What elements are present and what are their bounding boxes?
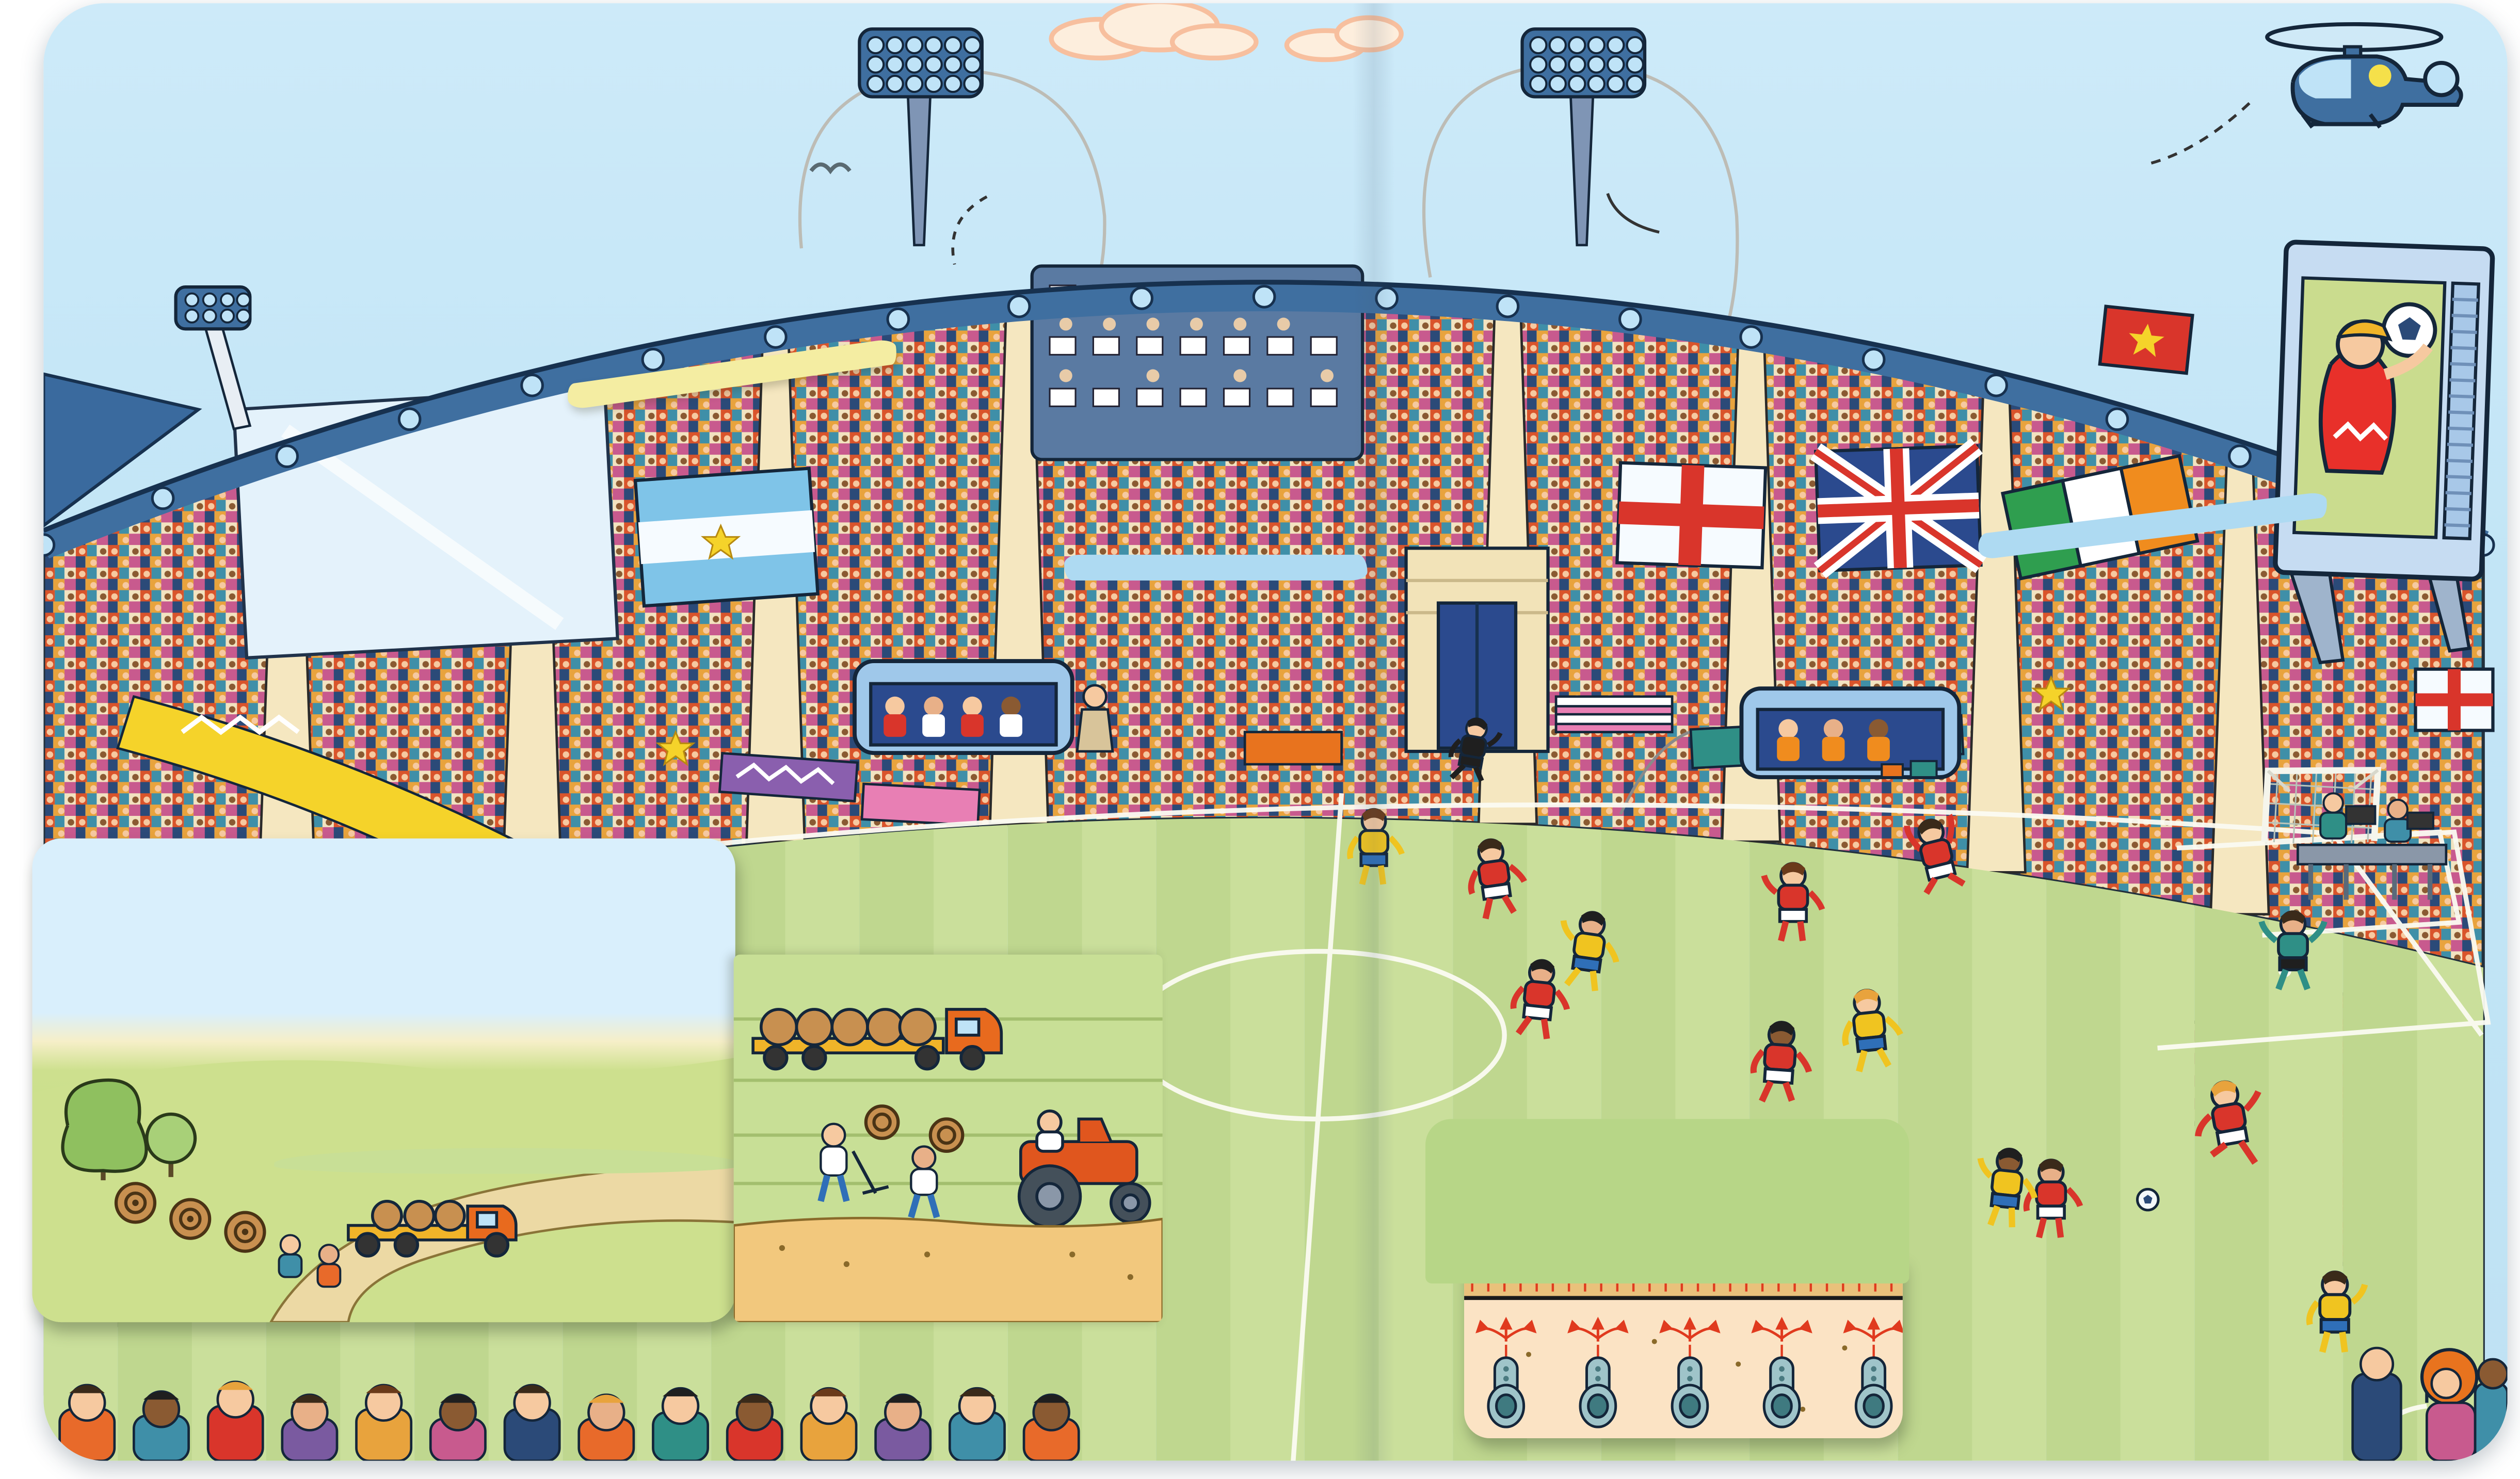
book-spine-crease <box>1353 3 1394 1461</box>
turf-roll-icon <box>866 1106 962 1151</box>
red-flag-icon <box>2100 307 2193 374</box>
soccer-ball-icon <box>2138 1189 2159 1210</box>
seagull-icon <box>811 165 850 171</box>
turf-field-illustration <box>32 839 735 1322</box>
book-spread <box>0 0 2520 1478</box>
helicopter-icon <box>2267 24 2461 127</box>
heating-pipe-icon <box>1488 1345 1891 1427</box>
turf-laying-panel <box>734 955 1163 1322</box>
floodlight-tower-icon <box>859 29 982 245</box>
heating-pipes-flap <box>1464 1258 1903 1438</box>
turf-field-flap <box>32 839 735 1322</box>
cloud-icon <box>1051 3 1401 59</box>
floodlight-tower-icon <box>1522 29 1645 245</box>
turf-laying-illustration <box>734 955 1163 1322</box>
heat-flow-arrows <box>1477 1319 1903 1342</box>
medics-bench <box>1741 688 1959 777</box>
note-team-bench <box>1064 555 1367 581</box>
flag-england-icon <box>1617 463 1765 568</box>
turf-truck-icon <box>753 1009 1001 1069</box>
tractor-icon <box>1019 1111 1150 1227</box>
flag-uk-icon <box>1816 446 1981 571</box>
heating-pipes-diagram <box>1464 1258 1903 1438</box>
heating-note-panel <box>1425 1119 1909 1283</box>
flag-england-icon <box>2416 669 2493 731</box>
